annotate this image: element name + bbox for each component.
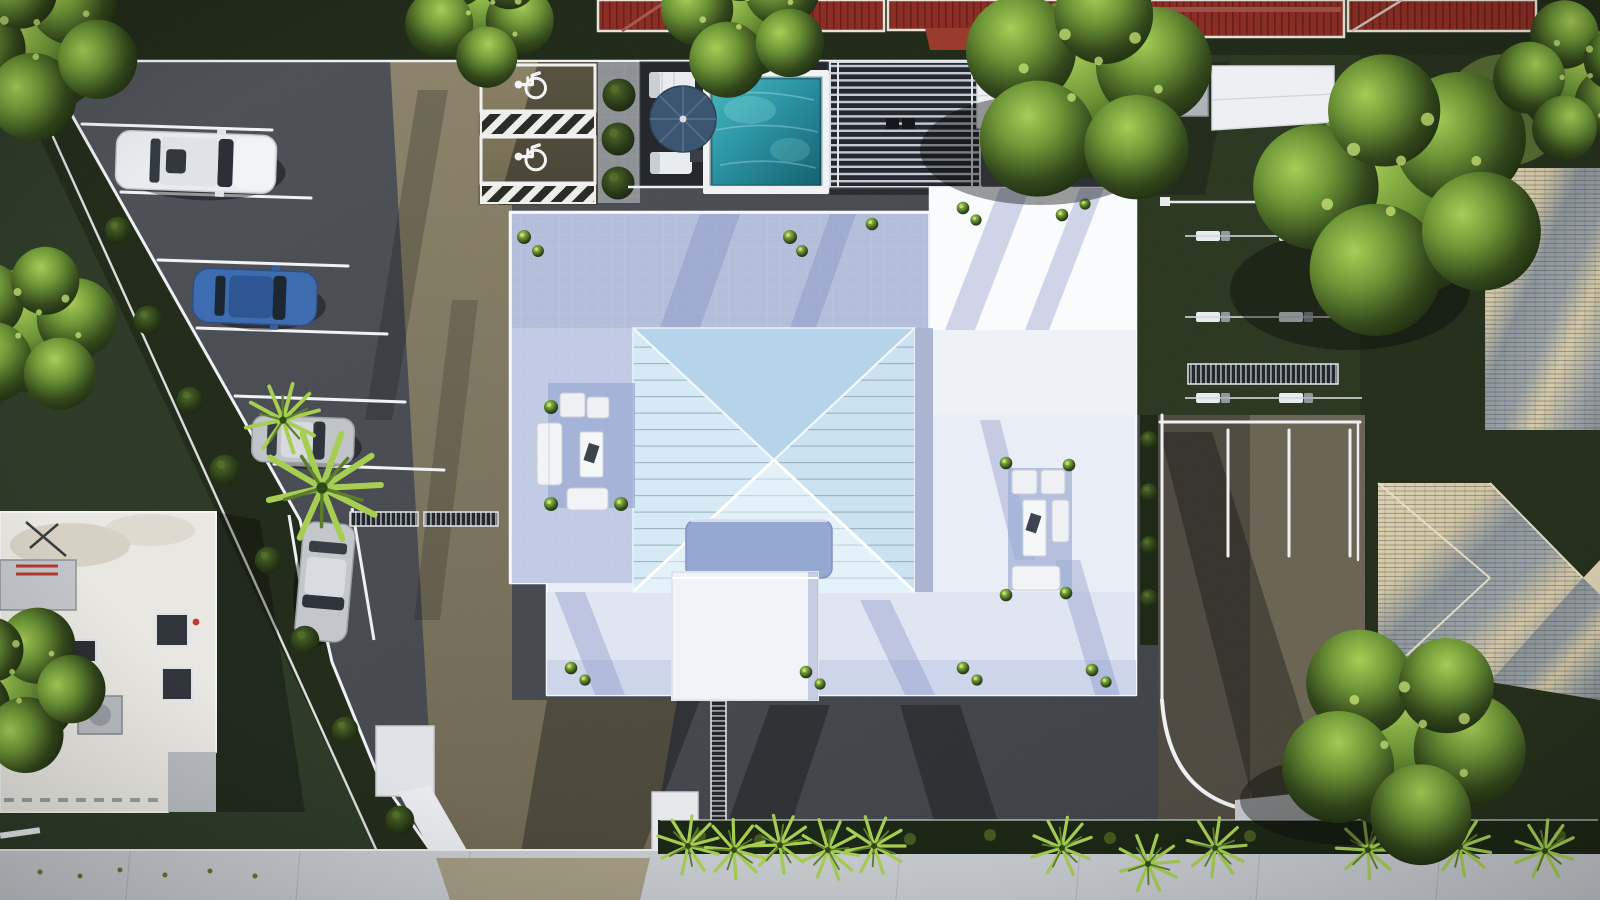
aerial-site-render: Aerial top-down 3D architectural renderi… xyxy=(0,0,1600,900)
vignette-overlay xyxy=(0,0,1600,900)
site-plan-canvas xyxy=(0,0,1600,900)
